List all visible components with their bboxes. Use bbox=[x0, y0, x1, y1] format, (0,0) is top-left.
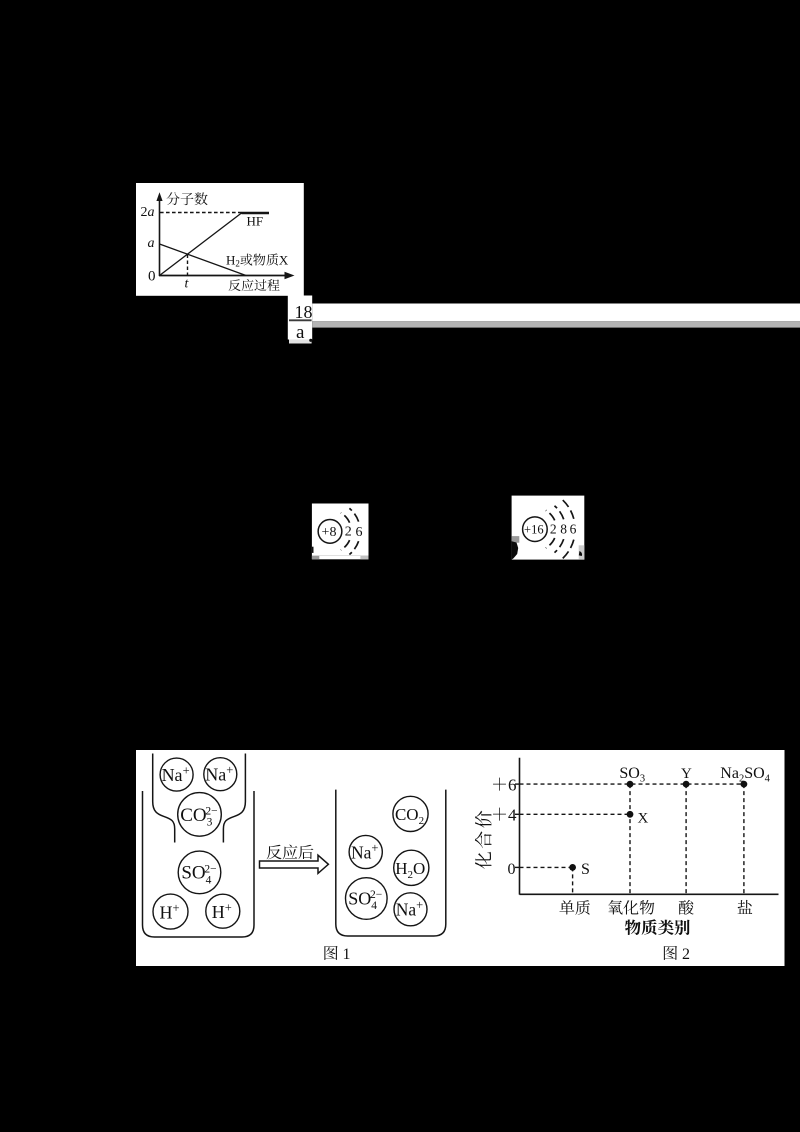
svg-text:HF: HF bbox=[247, 214, 264, 229]
svg-text:分子数: 分子数 bbox=[166, 192, 208, 208]
svg-text:+8: +8 bbox=[322, 525, 337, 540]
svg-text:图 2: 图 2 bbox=[662, 945, 690, 963]
svg-text:a: a bbox=[296, 322, 305, 343]
svg-text:8: 8 bbox=[560, 522, 567, 537]
svg-text:CO32−: CO32− bbox=[180, 805, 217, 829]
svg-text:＋6: ＋6 bbox=[491, 776, 517, 795]
svg-text:0: 0 bbox=[508, 861, 516, 878]
svg-text:SO42−: SO42− bbox=[181, 863, 216, 887]
svg-text:S: S bbox=[581, 861, 590, 878]
svg-text:6: 6 bbox=[570, 522, 577, 537]
svg-text:反应后: 反应后 bbox=[266, 844, 314, 862]
svg-text:＋4: ＋4 bbox=[491, 806, 517, 825]
svg-text:+16: +16 bbox=[524, 523, 544, 537]
svg-text:氧化物: 氧化物 bbox=[607, 900, 655, 918]
svg-text:0: 0 bbox=[148, 269, 156, 285]
svg-text:Y: Y bbox=[681, 766, 692, 782]
svg-text:反应过程: 反应过程 bbox=[228, 278, 281, 293]
svg-text:X: X bbox=[638, 811, 649, 827]
svg-text:盐: 盐 bbox=[737, 900, 753, 918]
svg-text:2a: 2a bbox=[141, 205, 155, 220]
svg-text:物质类别: 物质类别 bbox=[625, 919, 691, 938]
svg-text:18: 18 bbox=[295, 302, 313, 322]
svg-text:a: a bbox=[148, 236, 155, 251]
svg-text:单质: 单质 bbox=[559, 900, 591, 918]
svg-text:图 1: 图 1 bbox=[322, 945, 350, 963]
svg-text:2: 2 bbox=[345, 525, 352, 540]
svg-text:2: 2 bbox=[550, 522, 557, 537]
svg-text:酸: 酸 bbox=[678, 900, 694, 918]
svg-text:6: 6 bbox=[356, 525, 363, 540]
svg-text:Na2SO4: Na2SO4 bbox=[720, 765, 770, 785]
